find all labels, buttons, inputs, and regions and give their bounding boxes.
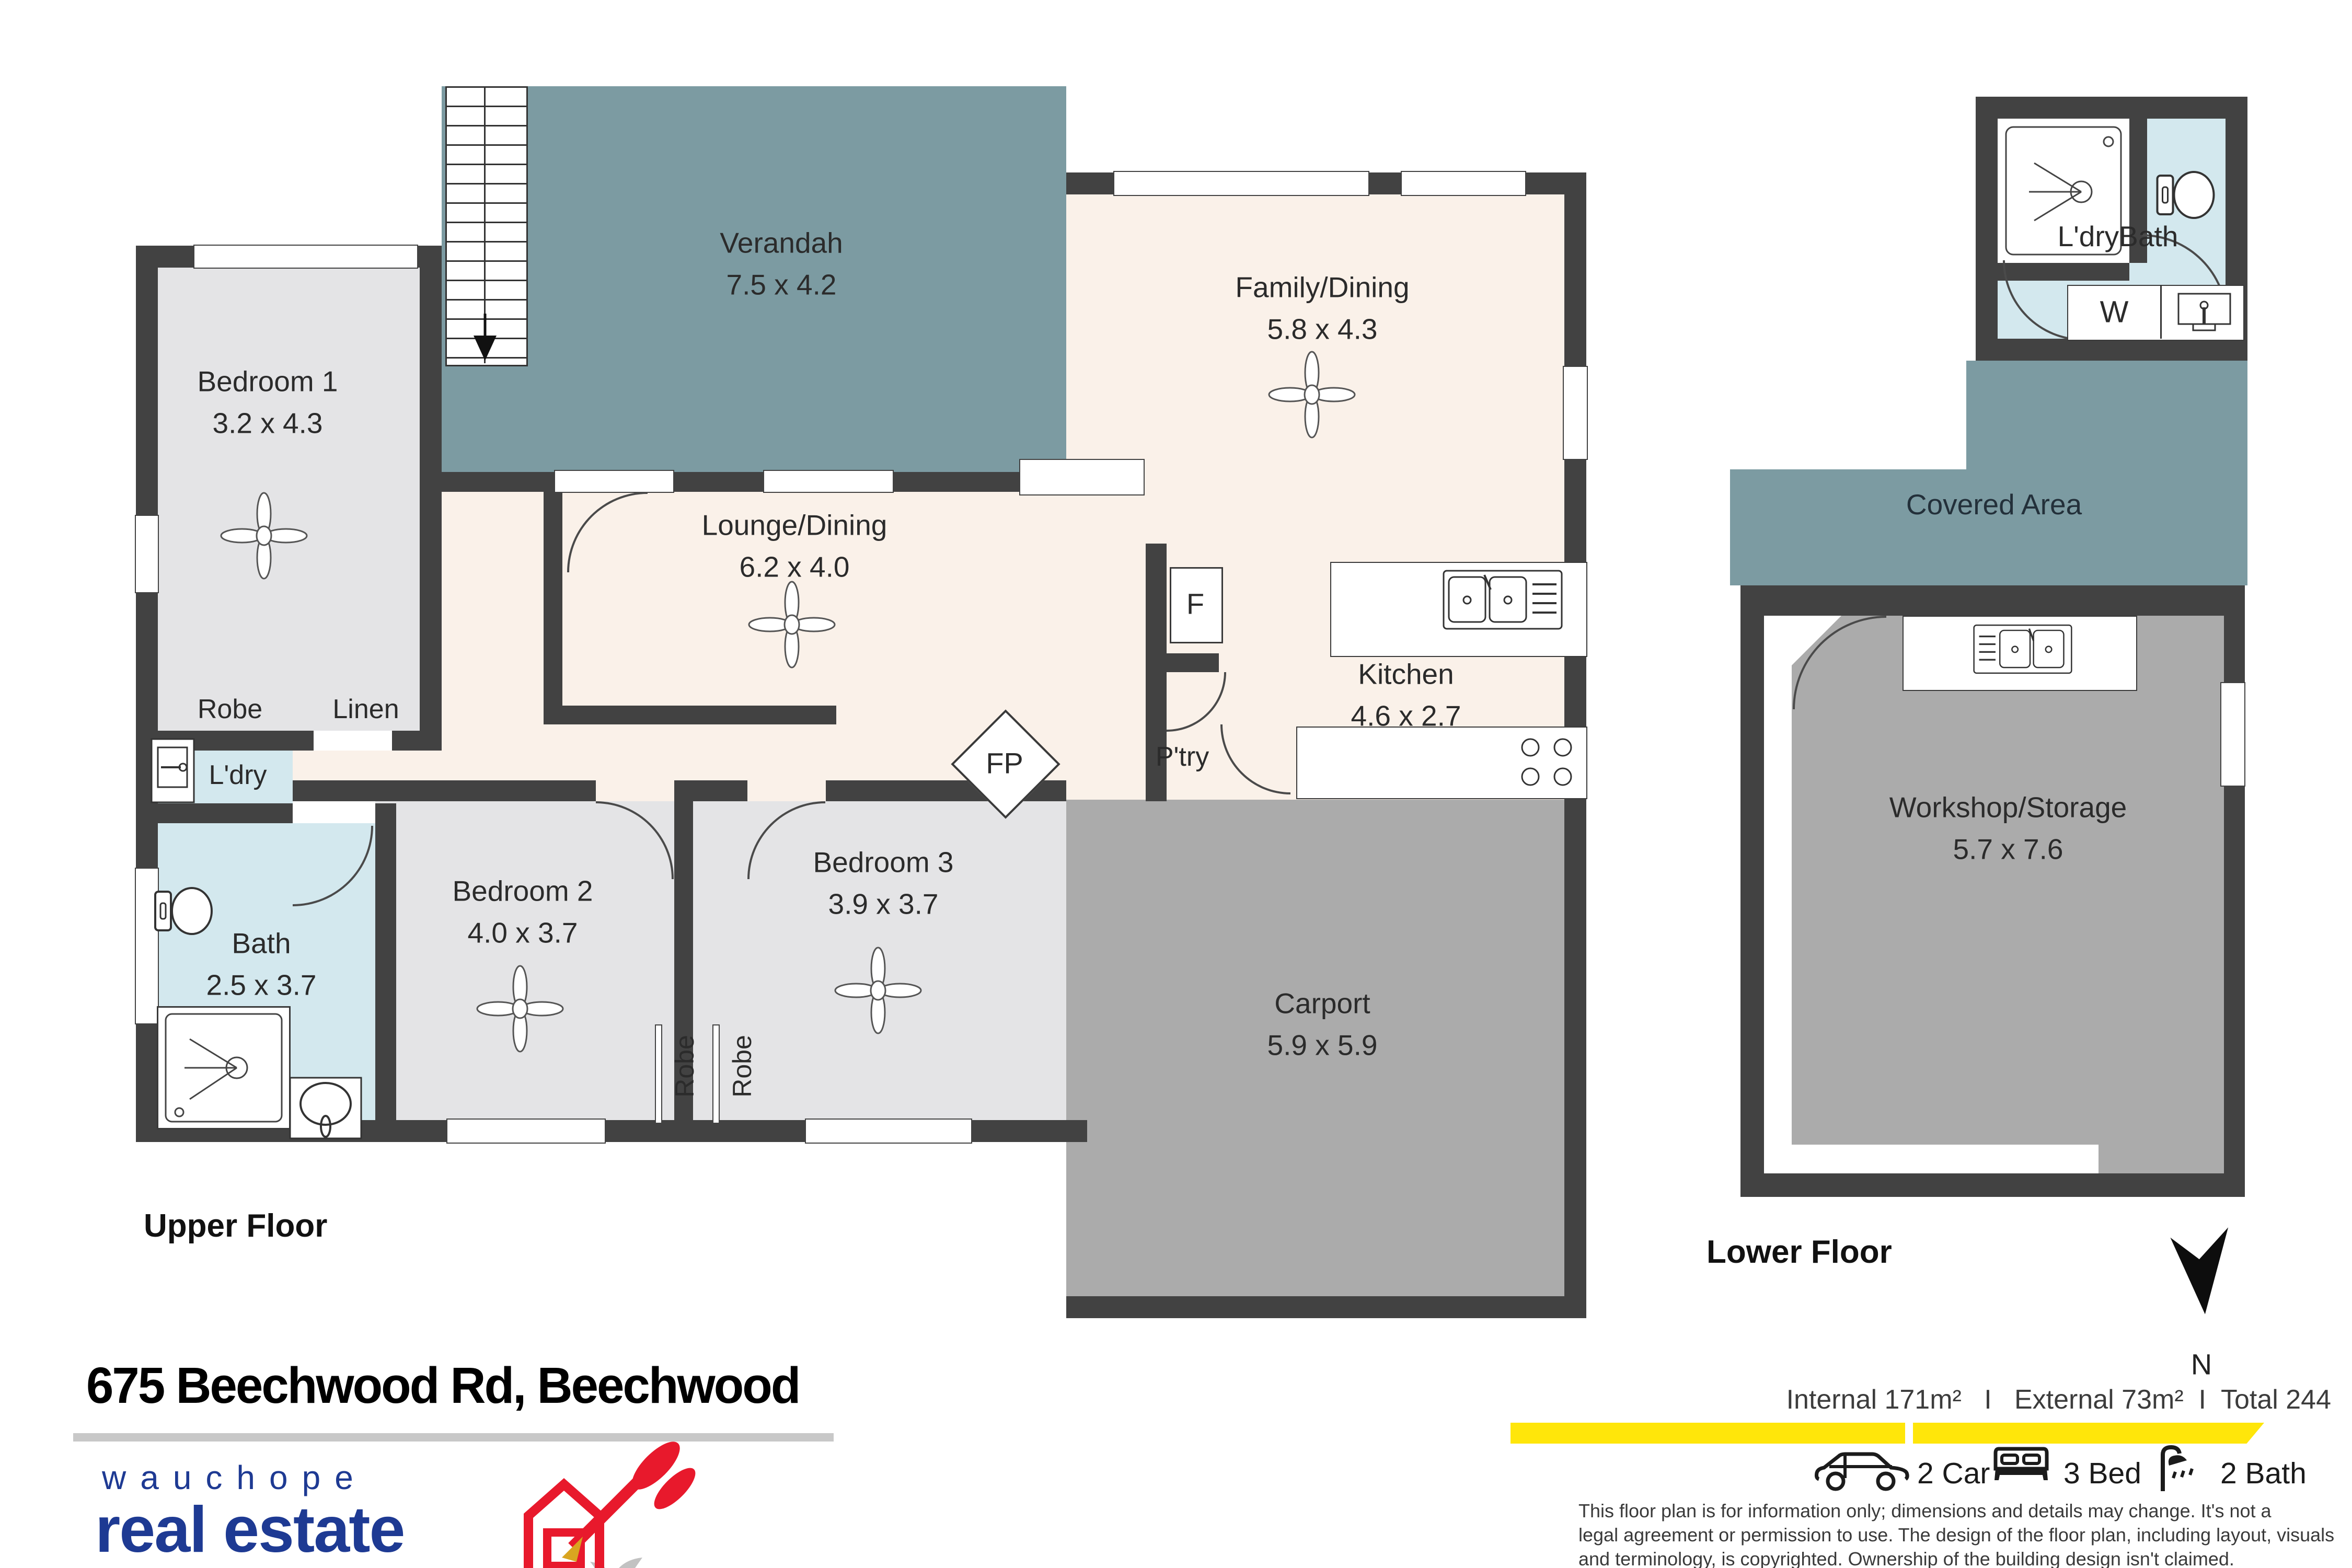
double-sink-icon [1973,623,2072,675]
shower-upper [157,1006,291,1129]
room-bedroom1 [158,268,420,731]
door-gap [747,780,826,801]
room-label-workshop: Workshop/Storage 5.7 x 7.6 [1889,787,2127,870]
basin-icon [289,1077,362,1139]
double-sink-icon [1443,570,1563,630]
brand-wauchope: wauchope [102,1458,367,1497]
window [135,515,159,593]
ceiling-fan-icon [1278,361,1346,429]
window [1401,171,1526,196]
wall [544,492,562,714]
room-label-verandah: Verandah 7.5 x 4.2 [720,222,843,306]
floorplan-canvas: FP F P'try [0,0,2352,1568]
door-gap [314,731,392,751]
toilet-icon [154,882,214,940]
north-arrow-icon [2159,1223,2237,1317]
disclaimer-line: This floor plan is for information only;… [1578,1499,2272,1523]
brand-real-estate: real estate [95,1493,405,1567]
wall [1564,800,1586,1318]
north-label: N [2191,1347,2212,1381]
area-stats: Internal 171m² I External 73m² I Total 2… [1547,1384,2331,1415]
wall [442,472,1066,492]
window [554,470,674,493]
robe-rail [712,1024,720,1124]
disclaimer-line: and terminology, is copyrighted. Ownersh… [1578,1547,2234,1568]
room-label-bath: Bath 2.5 x 3.7 [206,923,317,1006]
room-label-carport: Carport 5.9 x 5.9 [1267,983,1378,1066]
wall [1564,172,1586,800]
feature-bed: 3 Bed [2063,1456,2141,1491]
upper-floor-label: Upper Floor [144,1207,327,1244]
window [1563,366,1588,460]
room-label-fireplace: FP [986,746,1023,780]
room-label-covered: Covered Area [1906,488,2082,521]
car-icon [1814,1449,1908,1493]
feature-car: 2 Car [1917,1456,1990,1491]
feature-bath: 2 Bath [2220,1456,2307,1491]
room-label-bedroom3: Bedroom 3 3.9 x 3.7 [813,841,953,925]
ceiling-fan-icon [844,956,912,1024]
ceiling-fan-icon [230,502,298,570]
stairs-down-arrow-icon [470,314,500,361]
basin-icon [2174,292,2234,333]
room-label-robe-a: Robe [670,1035,700,1098]
stove-icon [1511,731,1584,793]
shower-head-icon [158,1008,289,1128]
wall [544,706,836,724]
window [446,1119,606,1144]
room-label-bedroom2: Bedroom 2 4.0 x 3.7 [452,870,593,954]
accent-stripe [1511,1423,1905,1444]
wall [1146,653,1219,672]
wall [1066,1296,1586,1318]
brand-logo-dart-house-icon [489,1443,713,1568]
room-label-robe-bed1: Robe [198,694,262,725]
lower-floor-label: Lower Floor [1707,1233,1892,1271]
door-gap [596,780,674,801]
wall [375,803,396,1142]
room-label-bedroom1: Bedroom 1 3.2 x 4.3 [197,361,338,444]
toilet-icon [2147,166,2226,224]
room-label-robe-b: Robe [727,1035,757,1098]
window [1113,171,1369,196]
footer-divider [73,1433,834,1442]
accent-stripe [1913,1423,2264,1444]
laundry-tub-icon [151,738,195,803]
room-covered-area [1730,469,1970,585]
wall [420,246,442,734]
room-label-linen: Linen [332,694,399,725]
room-label-kitchen: Kitchen 4.6 x 2.7 [1351,653,1461,737]
window [805,1119,972,1144]
ceiling-fan-icon [758,591,826,659]
wall [136,803,293,823]
room-label-washer: W [2100,295,2129,330]
shower-icon [2152,1442,2207,1496]
window [763,470,894,493]
ceiling-fan-icon [486,975,554,1043]
wall [293,780,1066,801]
bed-icon [1992,1444,2050,1496]
room-covered-area [1966,361,2247,585]
room-label-ldry: L'dry [209,759,267,791]
disclaimer-line: legal agreement or permission to use. Th… [1578,1523,2334,1547]
room-label-pantry: P'try [1156,741,1209,773]
sliding-door [1019,459,1145,495]
robe-rail [655,1024,662,1124]
room-label-family: Family/Dining 5.8 x 4.3 [1235,267,1409,350]
window [193,245,418,269]
room-workshop-corner [2099,1145,2224,1173]
counter-divider [2160,285,2162,339]
room-label-ldrybath: L'dryBath [2058,220,2178,253]
room-label-fridge: F [1186,587,1204,621]
property-address: 675 Beechwood Rd, Beechwood [86,1356,799,1415]
room-label-lounge: Lounge/Dining 6.2 x 4.0 [702,504,887,588]
window [2220,682,2245,787]
